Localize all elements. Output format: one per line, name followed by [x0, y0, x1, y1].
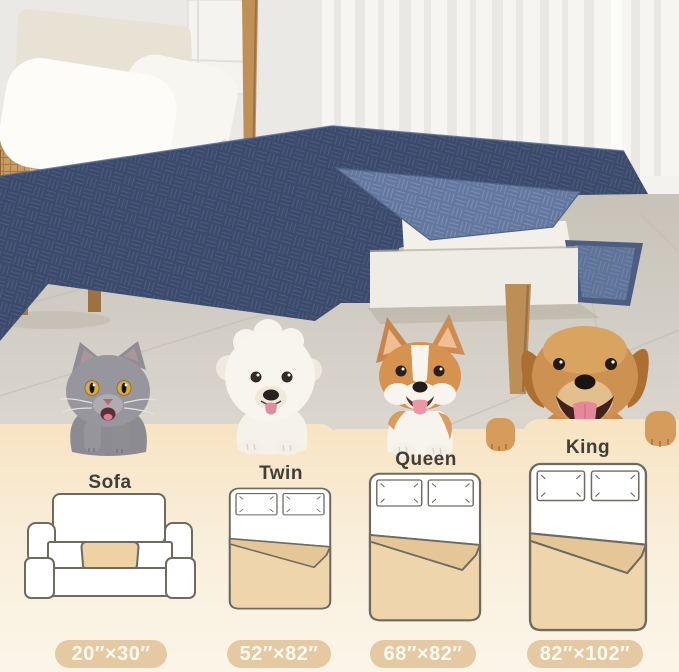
twin-bed-diagram — [228, 487, 332, 610]
golden-paw-left — [486, 418, 515, 451]
size-pill-twin: 52″×82″ — [227, 640, 331, 668]
size-label-king: King — [566, 437, 610, 459]
size-label-queen: Queen — [395, 449, 457, 471]
size-pill-sofa: 20″×30″ — [55, 640, 167, 668]
size-label-twin: Twin — [259, 463, 303, 485]
sofa-diagram — [22, 492, 198, 604]
queen-bed-diagram — [368, 472, 482, 622]
gray-cat — [60, 341, 156, 456]
corgi-tongue — [412, 400, 428, 415]
size-pill-queen: 68″×82″ — [370, 640, 476, 668]
product-image: Sofa Twin Queen King 20″×30″ 52″×82″ 68″… — [0, 0, 679, 672]
size-pill-king: 82″×102″ — [527, 640, 643, 668]
bichon-eye-left — [251, 372, 262, 383]
king-bed-diagram — [528, 462, 648, 632]
bichon-eye-right — [282, 372, 293, 383]
size-label-sofa: Sofa — [88, 472, 131, 494]
corgi-eye-right — [434, 366, 445, 377]
bichon-nose — [263, 390, 279, 401]
cat-paw-right — [112, 422, 130, 454]
bichon-tongue — [265, 403, 277, 415]
corgi-eye-left — [396, 366, 407, 377]
white-bichon-dog — [216, 319, 322, 456]
sofa-pet-pad — [82, 542, 139, 571]
bichon-paw-right — [274, 441, 300, 456]
corgi-nose — [413, 382, 428, 393]
golden-paw-right — [645, 411, 676, 446]
bichon-paw-left — [238, 440, 264, 455]
corgi-dog — [376, 314, 465, 458]
